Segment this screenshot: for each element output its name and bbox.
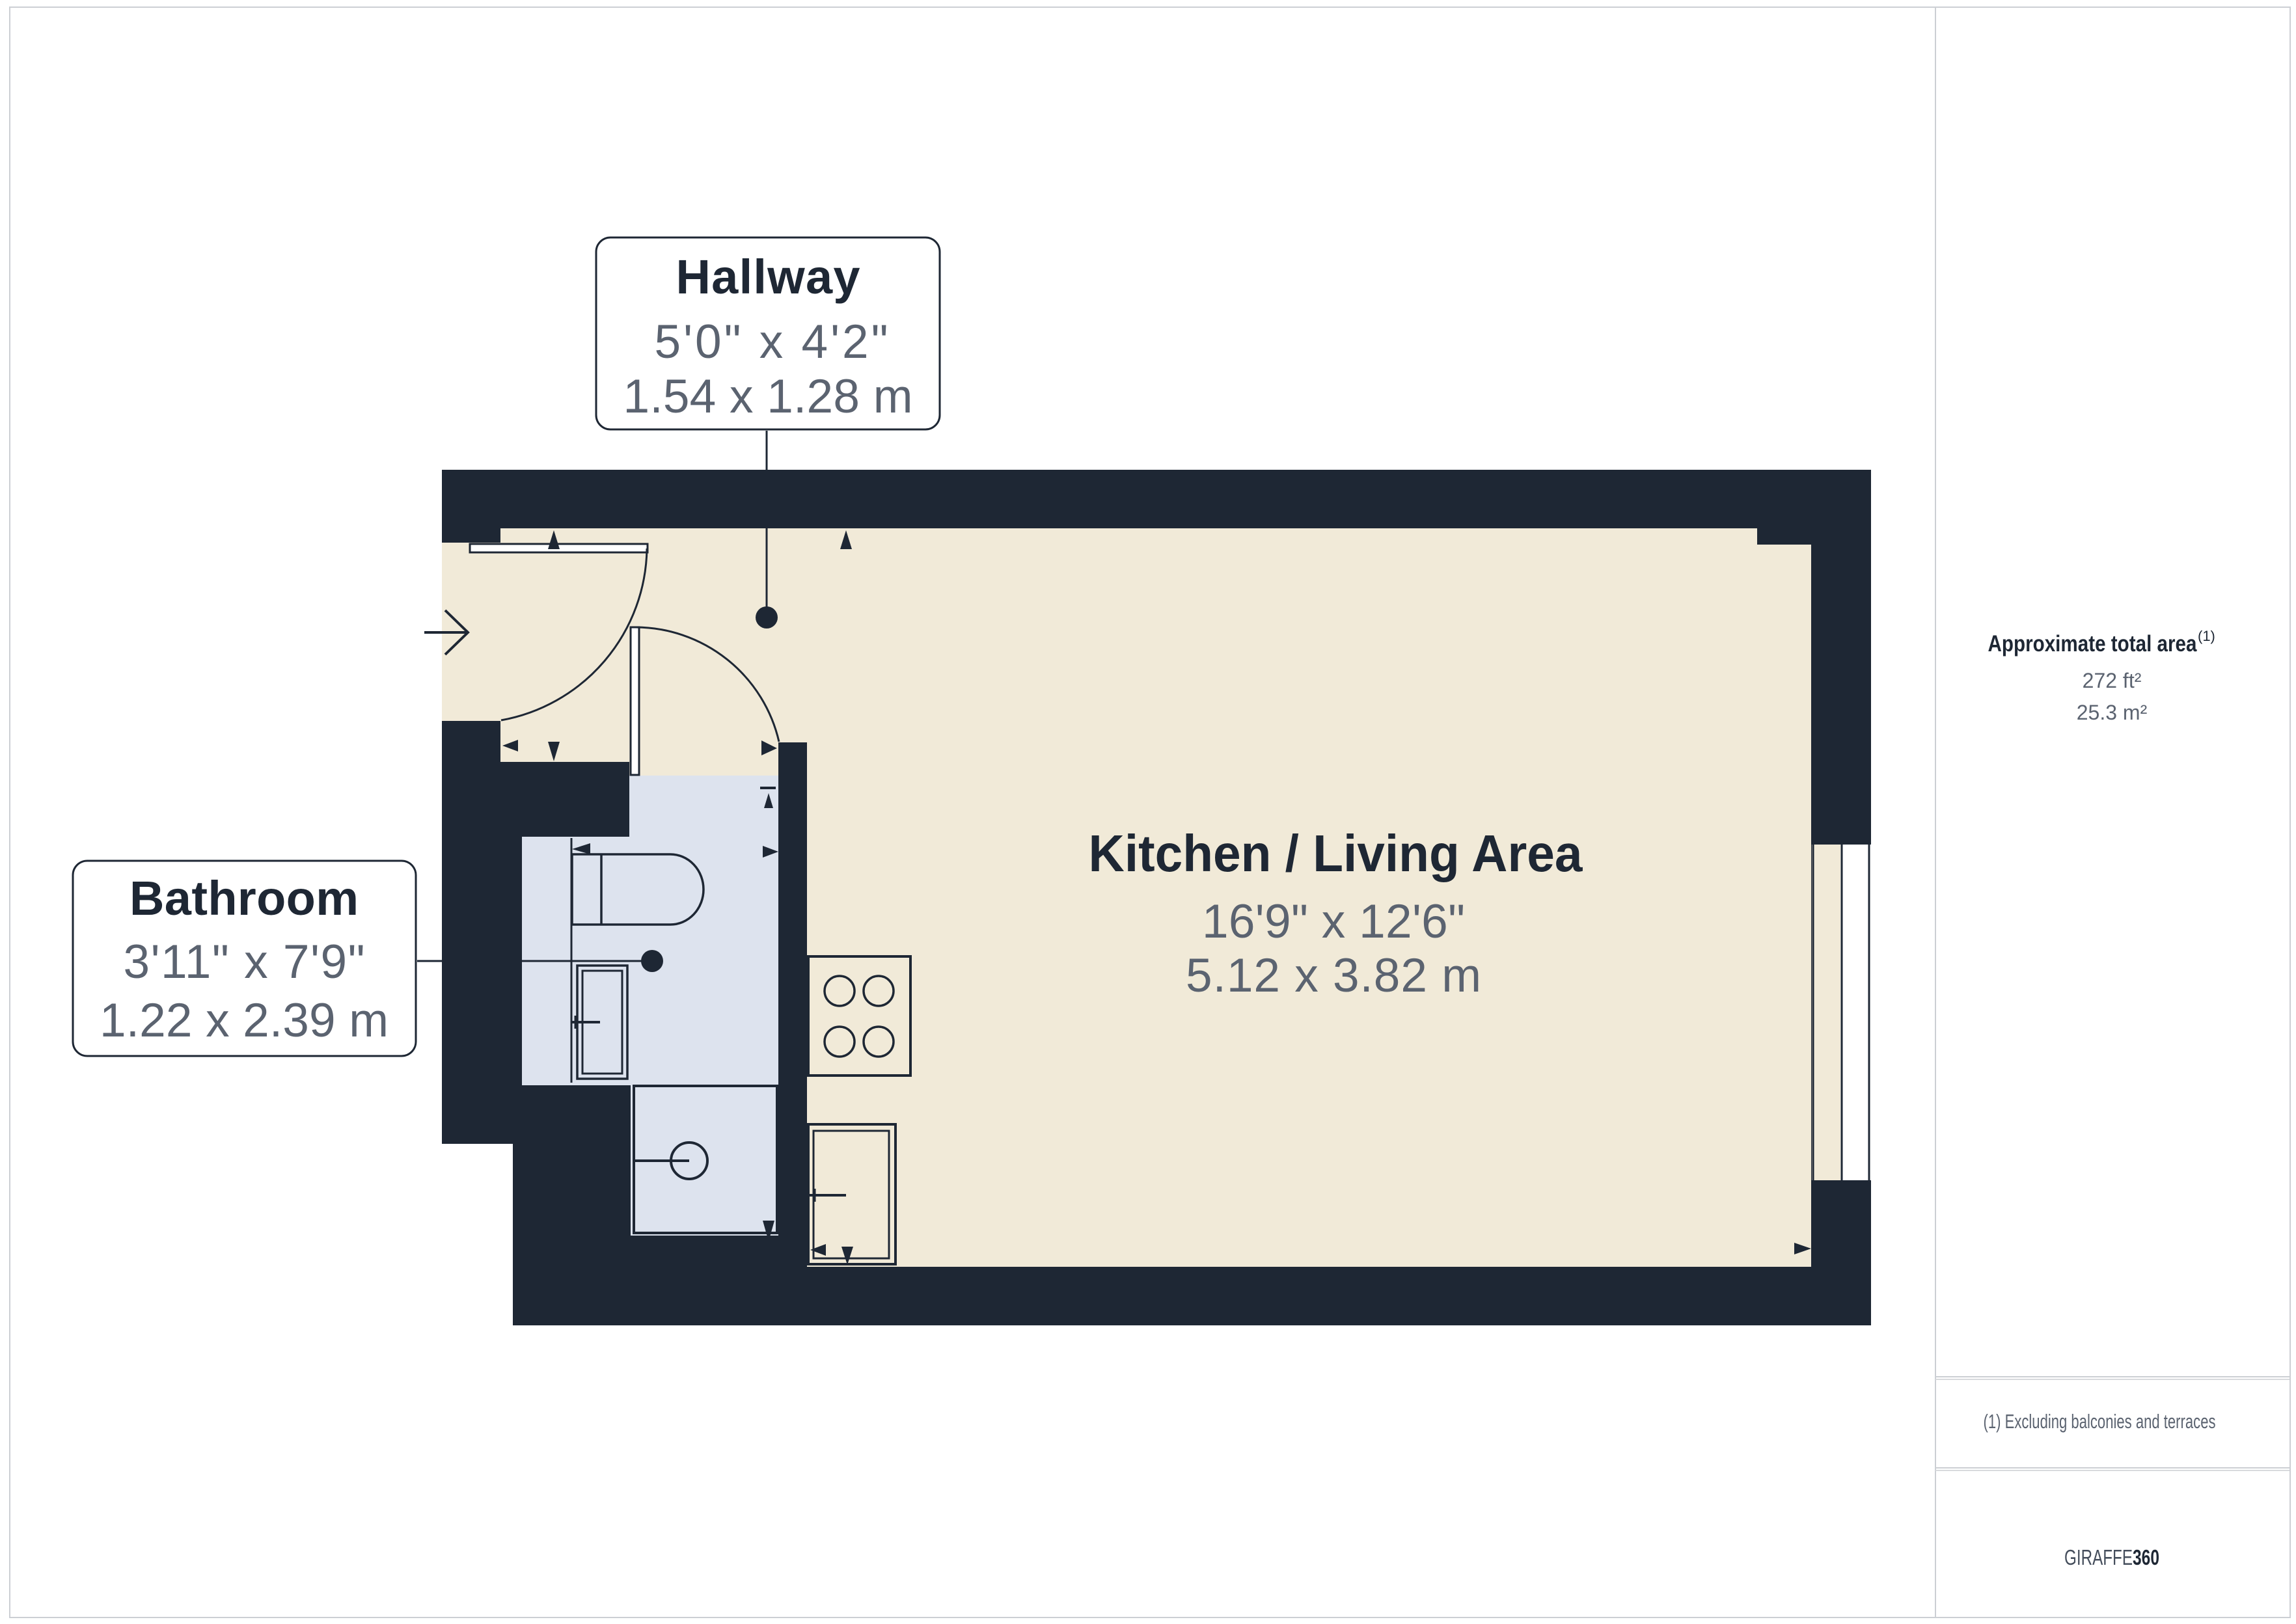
svg-text:Hallway: Hallway	[676, 250, 860, 304]
svg-text:5'0" x 4'2": 5'0" x 4'2"	[655, 316, 888, 368]
svg-text:Approximate total area: Approximate total area	[1988, 631, 2197, 656]
svg-text:272 ft²: 272 ft²	[2083, 669, 2142, 692]
svg-text:(1) Excluding balconies and te: (1) Excluding balconies and terraces	[1984, 1410, 2216, 1433]
svg-text:3'11" x 7'9": 3'11" x 7'9"	[124, 936, 365, 988]
svg-text:1.22 x 2.39 m: 1.22 x 2.39 m	[100, 994, 389, 1047]
svg-text:Kitchen / Living Area: Kitchen / Living Area	[1089, 824, 1583, 882]
svg-text:360: 360	[2133, 1545, 2159, 1569]
svg-text:GIRAFFE: GIRAFFE	[2064, 1545, 2133, 1569]
svg-text:Bathroom: Bathroom	[130, 871, 359, 925]
svg-text:16'9" x 12'6": 16'9" x 12'6"	[1202, 895, 1465, 948]
svg-text:5.12 x 3.82 m: 5.12 x 3.82 m	[1186, 949, 1481, 1002]
svg-text:(1): (1)	[2198, 628, 2215, 644]
svg-text:1.54 x 1.28 m: 1.54 x 1.28 m	[623, 370, 913, 423]
svg-text:25.3 m²: 25.3 m²	[2077, 701, 2148, 724]
